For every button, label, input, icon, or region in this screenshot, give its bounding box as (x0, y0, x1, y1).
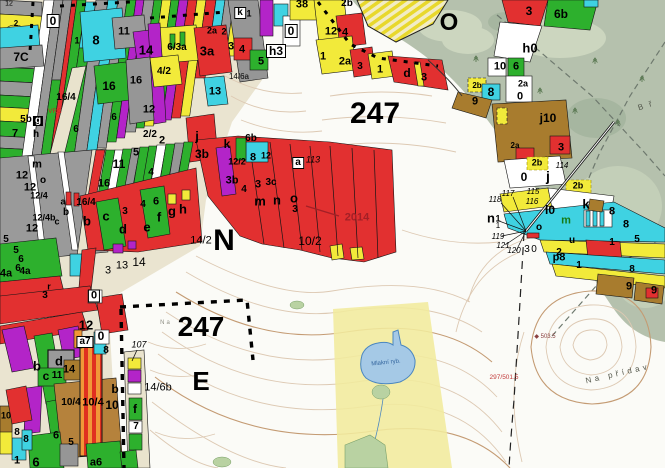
map-canvas[interactable]: 247N247EO201412208111146/3a3a2a2k17C1616… (0, 0, 665, 468)
map-graphics (0, 0, 665, 468)
